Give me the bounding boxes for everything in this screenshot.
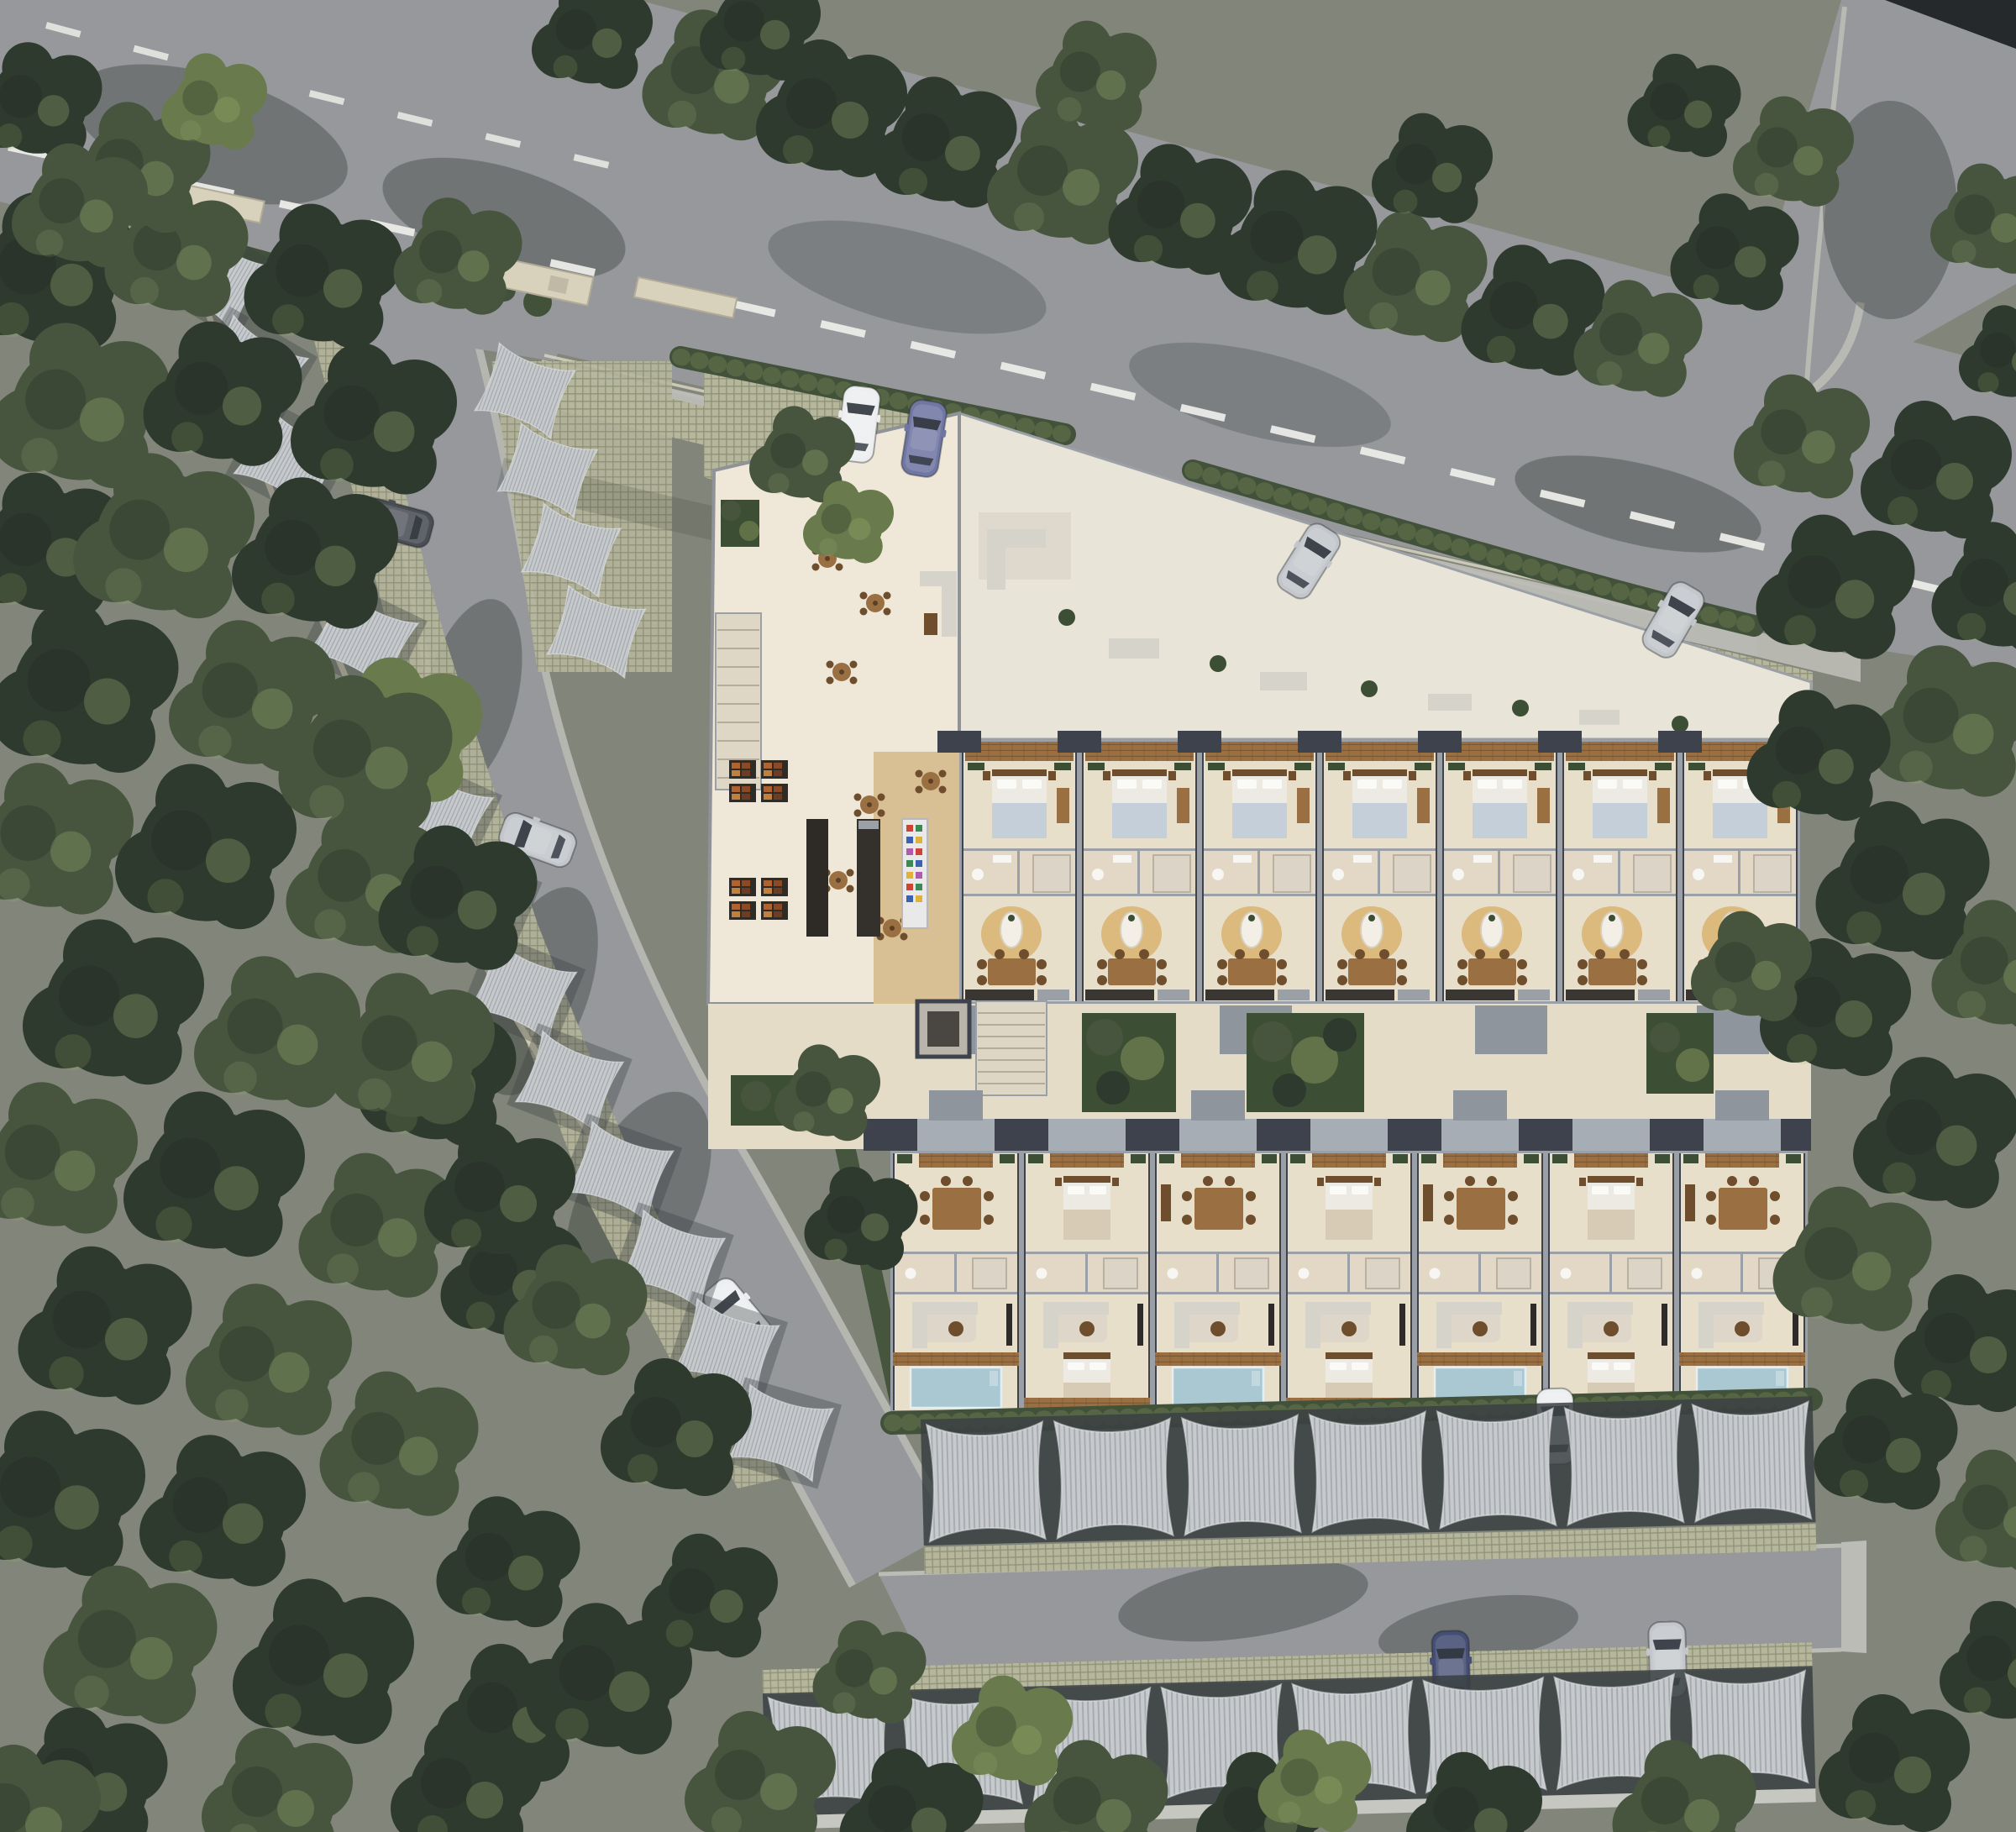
courtyard-planter — [1247, 1013, 1364, 1112]
market-shelf — [761, 784, 788, 802]
upper-unit — [1560, 739, 1680, 1004]
market-shelf — [761, 901, 788, 920]
bar-counter — [857, 819, 880, 937]
upper-unit — [959, 739, 1079, 1004]
scene-canvas — [0, 0, 2016, 1832]
upper-unit — [1440, 739, 1560, 1004]
market-shelf — [729, 901, 756, 920]
upper-unit — [1320, 739, 1440, 1004]
lower-unit — [1284, 1151, 1415, 1413]
market-shelf — [729, 760, 756, 779]
courtyard-planter — [1646, 1013, 1714, 1094]
lounge-sofa — [920, 571, 957, 586]
bar-counter — [806, 819, 828, 937]
retail-fridge — [902, 819, 927, 928]
south-canopy-row-1 — [921, 1396, 1816, 1574]
upper-unit — [1200, 739, 1320, 1004]
upper-wing — [937, 731, 1822, 1004]
lower-unit — [1546, 1151, 1677, 1413]
lower-wing — [864, 1090, 1811, 1423]
lower-unit-pool — [1415, 1151, 1546, 1413]
market-shelf — [729, 878, 756, 896]
market-shelf — [729, 784, 756, 802]
upper-unit — [1079, 739, 1200, 1004]
courtyard-planter — [1082, 1013, 1176, 1112]
lower-unit-pool — [1152, 1151, 1284, 1413]
lower-unit — [1021, 1151, 1152, 1413]
site-plan-rendering — [0, 0, 2016, 1832]
market-shelf — [761, 760, 788, 779]
market-shelf — [761, 878, 788, 896]
